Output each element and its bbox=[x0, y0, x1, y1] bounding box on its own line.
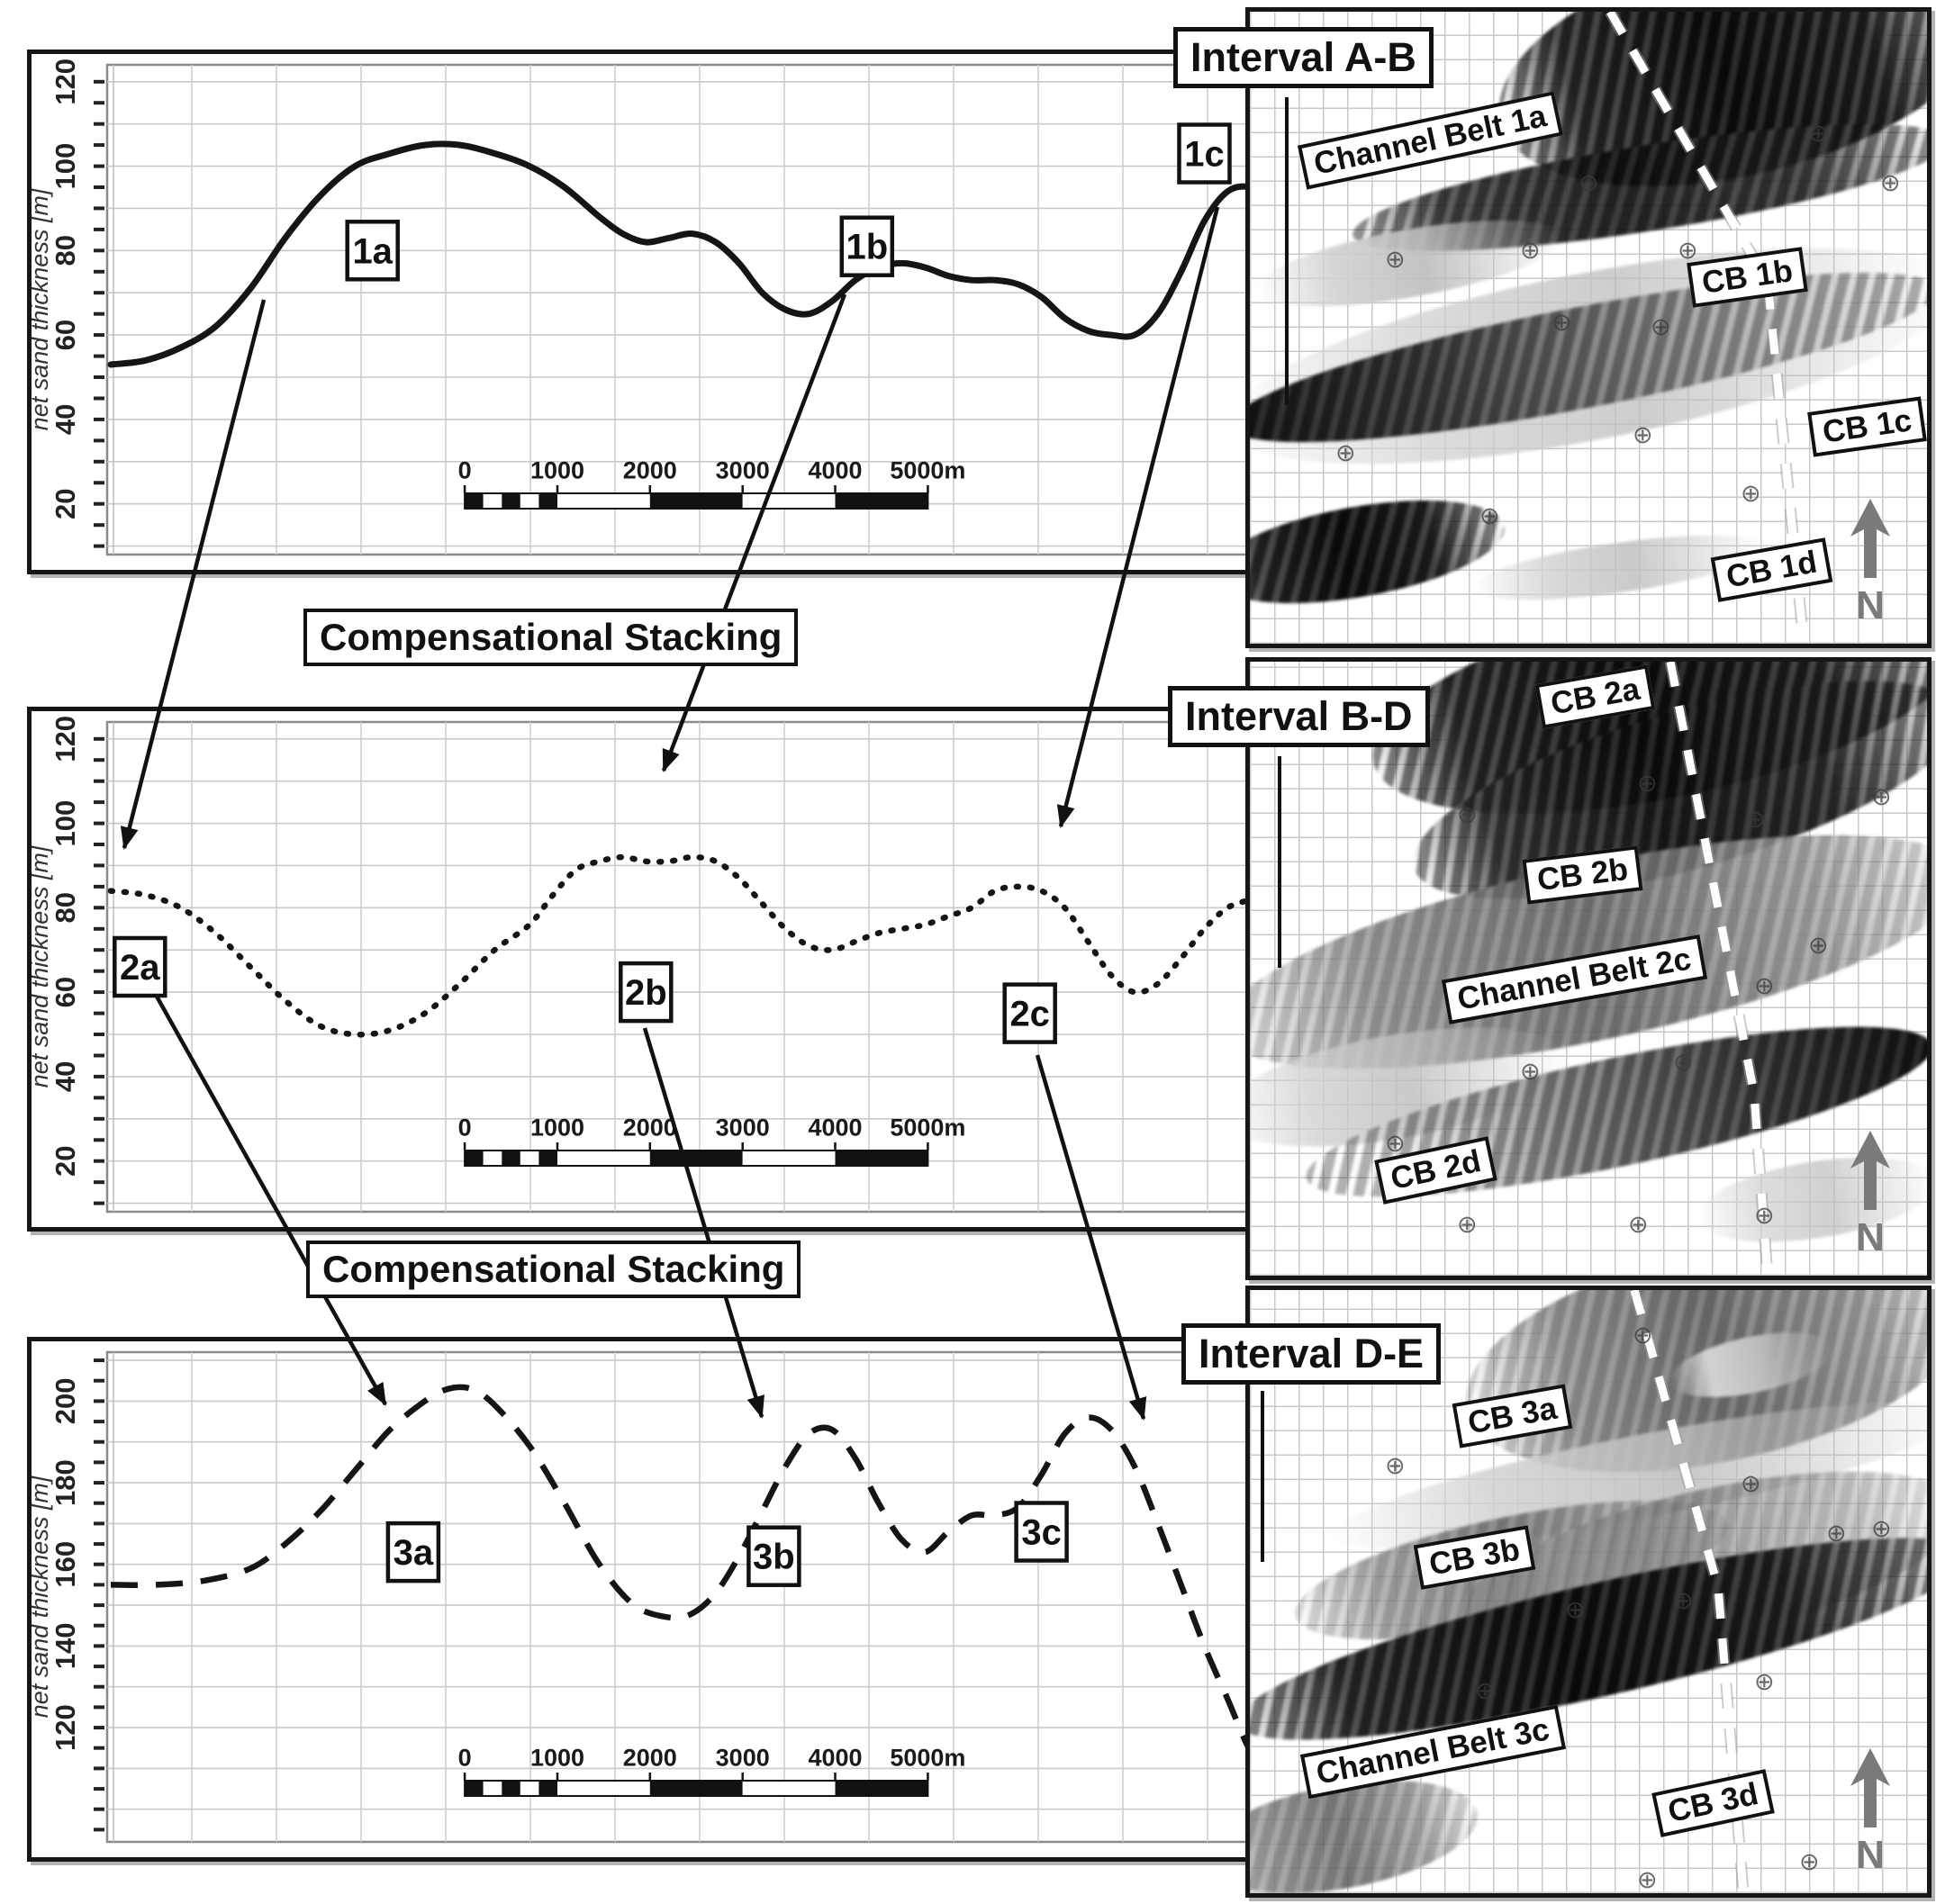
y-axis-tick-label: 120 bbox=[50, 716, 81, 763]
y-axis-tick-label: 120 bbox=[50, 59, 81, 105]
scale-bar-label: 1000 bbox=[530, 1745, 584, 1772]
well-symbol-icon: ⊕ bbox=[1385, 246, 1406, 274]
channel-belt-point-label: 3a bbox=[388, 1523, 439, 1581]
well-symbol-icon: ⊕ bbox=[1673, 1049, 1694, 1077]
y-axis-title: net sand thickness [m] bbox=[32, 187, 53, 430]
interval-label-b-d: Interval B-D bbox=[1168, 686, 1430, 747]
north-label: N bbox=[1839, 586, 1902, 626]
y-axis-title: net sand thickness [m] bbox=[32, 1475, 53, 1718]
north-arrow-icon bbox=[1843, 1129, 1897, 1212]
well-symbol-icon: ⊕ bbox=[1475, 1677, 1496, 1705]
well-symbol-icon: ⊕ bbox=[1520, 237, 1541, 265]
well-symbol-icon: ⊕ bbox=[1633, 421, 1653, 449]
scale-bar-label: 5000m bbox=[890, 457, 965, 484]
svg-text:1c: 1c bbox=[1184, 135, 1225, 175]
well-symbol-icon: ⊕ bbox=[1651, 313, 1671, 341]
figure-root: 20406080100120net sand thickness [m]0100… bbox=[0, 0, 1936, 1904]
north-arrow-icon bbox=[1843, 497, 1897, 580]
svg-text:3b: 3b bbox=[753, 1538, 795, 1577]
svg-text:2a: 2a bbox=[120, 948, 160, 988]
well-symbol-icon: ⊕ bbox=[1457, 801, 1478, 829]
channel-belt-point-label: 2a bbox=[114, 938, 165, 996]
scale-bar-label: 4000 bbox=[808, 1745, 862, 1772]
well-symbol-icon: ⊕ bbox=[1808, 932, 1829, 960]
well-symbol-icon: ⊕ bbox=[1754, 1668, 1775, 1696]
channel-belt-point-label: 2b bbox=[620, 963, 671, 1021]
y-axis-tick-label: 120 bbox=[50, 1704, 81, 1751]
svg-text:1b: 1b bbox=[846, 228, 888, 267]
well-symbol-icon: ⊕ bbox=[1457, 1211, 1478, 1239]
scale-bar-label: 1000 bbox=[530, 1114, 584, 1141]
well-symbol-icon: ⊕ bbox=[1741, 1470, 1761, 1498]
channel-belt-point-label: 2c bbox=[1005, 985, 1055, 1042]
channel-belt-point-label: 1c bbox=[1180, 125, 1230, 183]
scale-bar-label: 2000 bbox=[623, 457, 677, 484]
interval-label-d-e: Interval D-E bbox=[1181, 1323, 1441, 1385]
svg-text:2c: 2c bbox=[1009, 995, 1050, 1034]
y-axis-tick-label: 60 bbox=[50, 977, 81, 1007]
scale-bar-label: 0 bbox=[458, 1745, 472, 1772]
scale-bar-label: 4000 bbox=[808, 1114, 862, 1141]
channel-belt-point-label: 1b bbox=[842, 218, 892, 275]
well-symbol-icon: ⊕ bbox=[1385, 1452, 1406, 1480]
well-symbol-icon: ⊕ bbox=[1673, 1587, 1694, 1615]
compensational-stacking-label-2: Compensational Stacking bbox=[306, 1241, 801, 1298]
y-axis-tick-label: 20 bbox=[50, 488, 81, 519]
north-arrow: N bbox=[1839, 497, 1902, 626]
y-axis-tick-label: 100 bbox=[50, 143, 81, 190]
y-axis-tick-label: 160 bbox=[50, 1541, 81, 1588]
well-symbol-icon: ⊕ bbox=[1678, 237, 1698, 265]
y-axis-tick-label: 100 bbox=[50, 800, 81, 847]
y-axis-tick-label: 40 bbox=[50, 404, 81, 435]
north-label: N bbox=[1839, 1218, 1902, 1258]
compensational-stacking-label-1: Compensational Stacking bbox=[303, 609, 798, 666]
channel-belt-point-label: 3b bbox=[748, 1528, 799, 1585]
well-symbol-icon: ⊕ bbox=[1826, 1520, 1847, 1548]
well-symbol-icon: ⊕ bbox=[1335, 439, 1356, 467]
scale-bar-label: 3000 bbox=[716, 1114, 770, 1141]
well-symbol-icon: ⊕ bbox=[1633, 1322, 1653, 1349]
well-symbol-icon: ⊕ bbox=[1637, 770, 1658, 798]
y-axis-tick-label: 140 bbox=[50, 1623, 81, 1670]
map-panel-interval-a-b: ⊕⊕⊕⊕⊕⊕⊕⊕⊕⊕⊕⊕⊕Channel Belt 1aCB 1bCB 1cCB… bbox=[1245, 7, 1931, 648]
y-axis-tick-label: 40 bbox=[50, 1061, 81, 1092]
svg-text:3a: 3a bbox=[394, 1533, 434, 1573]
y-axis-tick-label: 60 bbox=[50, 320, 81, 350]
well-symbol-icon: ⊕ bbox=[1799, 1848, 1820, 1876]
scale-bar-label: 0 bbox=[458, 457, 472, 484]
y-axis-tick-label: 20 bbox=[50, 1145, 81, 1176]
well-symbol-icon: ⊕ bbox=[1754, 1202, 1775, 1230]
well-symbol-icon: ⊕ bbox=[1871, 1515, 1892, 1543]
well-symbol-icon: ⊕ bbox=[1628, 1211, 1649, 1239]
well-symbol-icon: ⊕ bbox=[1565, 1596, 1586, 1624]
scale-bar-label: 3000 bbox=[716, 1745, 770, 1772]
scale-bar-label: 5000m bbox=[890, 1745, 965, 1772]
y-axis-tick-label: 80 bbox=[50, 235, 81, 266]
well-symbol-icon: ⊕ bbox=[1520, 1058, 1541, 1086]
north-arrow: N bbox=[1839, 1746, 1902, 1875]
north-label: N bbox=[1839, 1836, 1902, 1875]
thickness-chart-d-e: 120140160180200net sand thickness [m]010… bbox=[32, 1341, 1289, 1857]
scale-bar-label: 2000 bbox=[623, 1114, 677, 1141]
scale-bar-label: 3000 bbox=[716, 457, 770, 484]
scale-bar-label: 5000m bbox=[890, 1114, 965, 1141]
plot-area bbox=[107, 65, 1280, 555]
scale-bar-label: 2000 bbox=[623, 1745, 677, 1772]
y-axis-tick-label: 80 bbox=[50, 892, 81, 923]
svg-text:2b: 2b bbox=[625, 973, 667, 1013]
y-axis-title: net sand thickness [m] bbox=[32, 844, 53, 1087]
thickness-chart-a-b: 20406080100120net sand thickness [m]0100… bbox=[32, 54, 1289, 570]
scale-bar-label: 4000 bbox=[808, 457, 862, 484]
y-axis-tick-label: 200 bbox=[50, 1378, 81, 1425]
north-arrow: N bbox=[1839, 1129, 1902, 1258]
svg-text:3c: 3c bbox=[1021, 1513, 1062, 1553]
interval-label-a-b: Interval A-B bbox=[1173, 27, 1434, 88]
well-symbol-icon: ⊕ bbox=[1745, 806, 1766, 834]
scale-bar-label: 0 bbox=[458, 1114, 472, 1141]
well-symbol-icon: ⊕ bbox=[1479, 502, 1500, 530]
well-symbol-icon: ⊕ bbox=[1871, 783, 1892, 811]
well-symbol-icon: ⊕ bbox=[1808, 120, 1829, 148]
well-symbol-icon: ⊕ bbox=[1552, 309, 1572, 337]
map-panel-interval-b-d: ⊕⊕⊕⊕⊕⊕⊕⊕⊕⊕⊕⊕⊕⊕CB 2aCB 2bChannel Belt 2cC… bbox=[1245, 657, 1931, 1280]
well-symbol-icon: ⊕ bbox=[1880, 169, 1901, 197]
well-symbol-icon: ⊕ bbox=[1637, 1866, 1658, 1894]
channel-belt-point-label: 1a bbox=[348, 221, 398, 279]
chart-panel-interval-d-e: 120140160180200net sand thickness [m]010… bbox=[27, 1337, 1294, 1862]
north-arrow-icon bbox=[1843, 1746, 1897, 1829]
channel-belt-point-label: 3c bbox=[1017, 1503, 1067, 1561]
svg-text:1a: 1a bbox=[352, 231, 393, 271]
well-symbol-icon: ⊕ bbox=[1579, 169, 1599, 197]
well-symbol-icon: ⊕ bbox=[1741, 480, 1761, 508]
thickness-chart-b-d: 20406080100120net sand thickness [m]0100… bbox=[32, 711, 1289, 1227]
scale-bar-label: 1000 bbox=[530, 457, 584, 484]
y-axis-tick-label: 180 bbox=[50, 1459, 81, 1506]
chart-panel-interval-b-d: 20406080100120net sand thickness [m]0100… bbox=[27, 707, 1294, 1232]
well-symbol-icon: ⊕ bbox=[1754, 972, 1775, 1000]
chart-panel-interval-a-b: 20406080100120net sand thickness [m]0100… bbox=[27, 50, 1294, 574]
